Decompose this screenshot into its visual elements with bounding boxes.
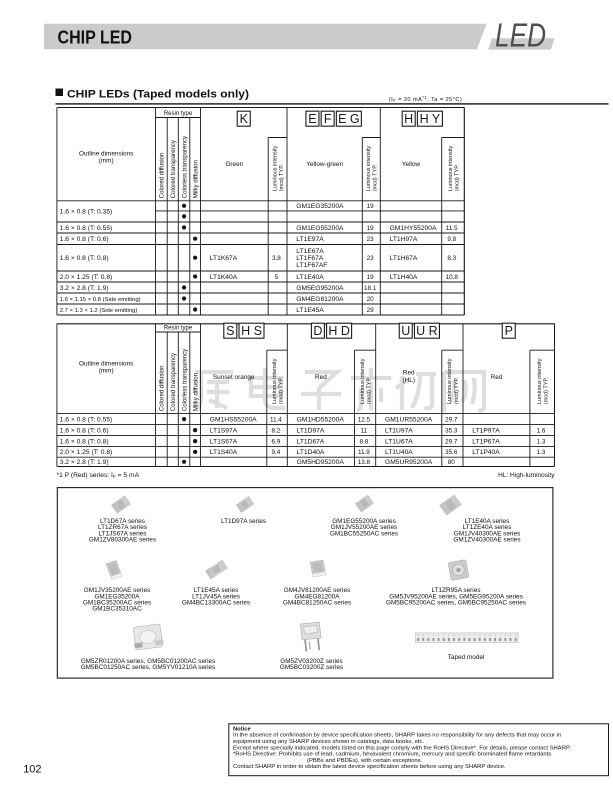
svg-text:23: 23 [367,236,375,243]
svg-text:GM1EG55200A: GM1EG55200A [296,225,344,232]
svg-text:Except where specially indicat: Except where specially indicated, models… [233,745,571,751]
svg-text:11: 11 [361,427,368,434]
svg-text:Luminous intensity: Luminous intensity [537,358,543,404]
svg-text:(mm): (mm) [99,158,114,165]
svg-text:(mcd) TYP.: (mcd) TYP. [278,377,284,404]
svg-text:GM5BC01250AC series, GM5YV0121: GM5BC01250AC series, GM5YV01210A series [81,664,216,671]
svg-text:LT1E97A: LT1E97A [296,236,324,243]
svg-text:HL: High-luminosity: HL: High-luminosity [498,472,555,479]
svg-text:1.6 × 0.8 (T: 0.8): 1.6 × 0.8 (T: 0.8) [60,255,109,262]
svg-text:18.1: 18.1 [364,285,377,292]
svg-text:5: 5 [275,274,279,281]
svg-text:2.0 × 1.25 (T: 0.8): 2.0 × 1.25 (T: 0.8) [60,274,113,281]
svg-text:LT1S40A: LT1S40A [210,449,238,456]
svg-text:Colored diffusion: Colored diffusion [159,153,166,199]
svg-text:GM1HY55200A: GM1HY55200A [390,225,437,232]
svg-text:LT1K67A: LT1K67A [210,255,238,262]
svg-text:LED: LED [495,17,546,54]
svg-text:11.4: 11.4 [270,416,282,423]
svg-text:E G: E G [338,112,360,126]
svg-text:(mm): (mm) [99,368,114,375]
svg-text:13.8: 13.8 [358,459,371,466]
svg-text:3.8: 3.8 [272,255,281,262]
svg-text:29.7: 29.7 [445,438,458,445]
svg-text:1.6 × 0.8 (T: 0.8): 1.6 × 0.8 (T: 0.8) [60,438,109,445]
svg-text:GM5HD95200A: GM5HD95200A [297,459,345,466]
svg-text:GM5UR95200A: GM5UR95200A [385,459,433,466]
svg-text:LT1E40A: LT1E40A [296,274,324,281]
svg-text:23: 23 [367,255,375,262]
svg-text:(mcd) TYP.: (mcd) TYP. [279,164,285,191]
svg-text:LT1P97A: LT1P97A [472,427,500,434]
svg-text:GM5BC03200Z series: GM5BC03200Z series [280,664,343,671]
svg-text:GM1BC55250AC series: GM1BC55250AC series [330,530,398,537]
svg-text:LT1U67A: LT1U67A [385,438,413,445]
svg-text:19: 19 [367,203,375,210]
svg-text:8.2: 8.2 [271,427,280,434]
svg-text:102: 102 [23,763,41,775]
svg-text:CHIP LEDs (Taped models only): CHIP LEDs (Taped models only) [67,89,249,101]
svg-text:35.3: 35.3 [445,427,458,434]
svg-text:1.6 × 0.8 (T: 0.35): 1.6 × 0.8 (T: 0.35) [60,209,113,216]
svg-text:3.2 × 2.8 (T: 1.9): 3.2 × 2.8 (T: 1.9) [60,459,109,466]
svg-text:Colored transparency: Colored transparency [170,352,177,411]
svg-text:Outline dimensions: Outline dimensions [79,151,133,158]
svg-text:In the absence of confirmation: In the absence of confirmation by device… [233,733,561,739]
svg-text:Colorless transparency: Colorless transparency [181,135,188,198]
svg-text:LT1U40A: LT1U40A [385,449,413,456]
svg-text:(mcd) TYP.: (mcd) TYP. [367,377,373,404]
svg-text:GM1BC35310AC: GM1BC35310AC [92,606,142,613]
svg-text:Colored transparency: Colored transparency [170,139,177,198]
svg-text:(mcd) TYP.: (mcd) TYP. [544,377,550,404]
svg-text:10.8: 10.8 [446,274,459,281]
svg-text:Yellow-green: Yellow-green [306,161,343,168]
svg-text:Milky diffusion: Milky diffusion [192,160,199,198]
svg-text:Luminous intensity: Luminous intensity [447,358,453,404]
svg-text:Colored diffusion: Colored diffusion [159,365,166,411]
svg-text:GM4EG81200A: GM4EG81200A [296,296,344,303]
svg-text:LT1D97A series: LT1D97A series [221,518,266,525]
svg-text:1.3: 1.3 [537,438,546,445]
svg-text:Luminous intensity: Luminous intensity [366,145,372,191]
svg-text:LT1U97A: LT1U97A [385,427,413,434]
svg-text:H Y: H Y [420,112,441,126]
svg-text:K: K [240,112,249,126]
svg-text:GM5BC95200AC series, GM5BC9525: GM5BC95200AC series, GM5BC95250AC series [386,600,526,607]
svg-text:LT1F67AF: LT1F67AF [296,262,327,269]
svg-text:Green: Green [225,161,243,168]
svg-text:LT1D97A: LT1D97A [297,427,325,434]
svg-text:LT1E45A: LT1E45A [296,307,324,314]
svg-text:Contact SHARP in order to obta: Contact SHARP in order to obtain the lat… [233,764,506,770]
svg-text:GM1HD55200A: GM1HD55200A [297,416,345,423]
svg-text:Red: Red [315,374,327,381]
svg-text:Yellow: Yellow [402,161,421,168]
svg-text:80: 80 [448,459,456,466]
svg-text:Notice: Notice [233,727,251,733]
svg-text:1.3: 1.3 [537,449,546,456]
svg-text:8.3: 8.3 [447,255,456,262]
svg-text:12.5: 12.5 [358,416,371,423]
svg-text:35.6: 35.6 [445,449,458,456]
svg-text:11.5: 11.5 [446,225,458,232]
svg-text:2.7 × 1.3 × 1.2 (Side emitting: 2.7 × 1.3 × 1.2 (Side emitting) [60,308,138,314]
svg-text:*1 P (Red) series: IF = 5 mA: *1 P (Red) series: IF = 5 mA [57,472,140,480]
svg-text:(mcd) TYP.: (mcd) TYP. [454,377,460,404]
svg-text:9.8: 9.8 [447,236,456,243]
svg-text:GM4BC81250AC series: GM4BC81250AC series [283,600,351,607]
svg-text:H S: H S [241,324,262,338]
svg-text:1.6 × 0.8 (T: 0.6): 1.6 × 0.8 (T: 0.6) [60,427,109,434]
svg-text:8.8: 8.8 [360,438,369,445]
svg-text:LT1S67A: LT1S67A [210,438,238,445]
svg-text:3.2 × 2.8 (T: 1.9): 3.2 × 2.8 (T: 1.9) [60,285,109,292]
svg-text:U: U [401,324,410,338]
svg-text:1.6 × 0.8 (T: 0.55): 1.6 × 0.8 (T: 0.55) [60,416,113,423]
svg-text:Taped model: Taped model [448,654,485,661]
svg-text:LT1D40A: LT1D40A [297,449,325,456]
svg-text:29.7: 29.7 [445,416,458,423]
svg-text:6.9: 6.9 [271,438,280,445]
svg-text:E: E [308,112,316,126]
svg-text:GM1ZV80300AE series: GM1ZV80300AE series [89,537,156,544]
svg-text:LT1H97A: LT1H97A [390,236,418,243]
svg-text:LT1P40A: LT1P40A [472,449,500,456]
svg-text:20: 20 [367,296,375,303]
svg-text:Luminous intensity: Luminous intensity [272,358,278,404]
svg-text:CHIP LED: CHIP LED [58,26,133,47]
svg-text:(mcd) TYP.: (mcd) TYP. [373,164,379,191]
svg-text:Colorless transparency: Colorless transparency [181,348,188,411]
svg-text:1.6 × 0.8 (T: 0.55): 1.6 × 0.8 (T: 0.55) [60,225,113,232]
svg-text:1.6: 1.6 [537,427,546,434]
svg-text:LT1E67A: LT1E67A [296,248,324,255]
svg-text:U R: U R [416,324,438,338]
svg-text:Resin type: Resin type [164,325,193,331]
svg-text:9.4: 9.4 [271,449,280,456]
svg-text:GM5EG95200A: GM5EG95200A [296,285,344,292]
svg-text:H D: H D [328,324,350,338]
svg-text:equipment using any SHARP devi: equipment using any SHARP devices shown … [233,739,424,745]
svg-text:LT1H40A: LT1H40A [390,274,418,281]
svg-text:*RoHS Directive: Prohibits use: *RoHS Directive: Prohibits use of lead, … [233,752,551,758]
svg-text:P: P [505,324,513,338]
svg-text:D: D [313,324,322,338]
svg-text:GM1HS55200A: GM1HS55200A [210,416,257,423]
svg-text:19: 19 [367,225,375,232]
svg-text:Milky diffusion: Milky diffusion [192,373,199,411]
svg-text:GM4BC13300AC series: GM4BC13300AC series [182,600,250,607]
svg-text:Luminous intensity: Luminous intensity [360,358,366,404]
svg-text:GM1ZV40300AE series: GM1ZV40300AE series [453,537,520,544]
svg-text:Resin type: Resin type [164,111,193,117]
svg-text:H: H [404,112,413,126]
svg-text:GM1EG35200A: GM1EG35200A [296,203,344,210]
svg-text:29: 29 [367,307,375,314]
svg-text:S: S [226,324,234,338]
svg-text:Sunset orange: Sunset orange [213,374,255,381]
svg-text:(HL): (HL) [403,377,415,384]
svg-text:LT1P67A: LT1P67A [472,438,500,445]
svg-text:Outline dimensions: Outline dimensions [79,361,133,368]
svg-text:1.6 × 1.15 × 0.8 (Side emittin: 1.6 × 1.15 × 0.8 (Side emitting) [60,297,141,303]
svg-text:Luminous intensity: Luminous intensity [448,145,454,191]
svg-text:19: 19 [367,274,375,281]
svg-text:LT1F67A: LT1F67A [296,255,324,262]
svg-text:1.6 × 0.8 (T: 0.6): 1.6 × 0.8 (T: 0.6) [60,236,109,243]
svg-text:11.9: 11.9 [358,449,370,456]
svg-text:LT1H67A: LT1H67A [390,255,418,262]
svg-text:GM1UR55200A: GM1UR55200A [385,416,433,423]
svg-text:(PBBs and PBDEs), with certain: (PBBs and PBDEs), with certain exception… [307,758,423,764]
svg-text:LT1D67A: LT1D67A [297,438,325,445]
svg-text:(mcd) TYP.: (mcd) TYP. [454,164,460,191]
svg-text:Red: Red [491,374,503,381]
svg-text:(IF = 20 mA*1, Ta = 25°C): (IF = 20 mA*1, Ta = 25°C) [389,95,462,103]
svg-text:F: F [324,112,332,126]
svg-text:LT1S97A: LT1S97A [210,427,238,434]
svg-text:Luminous intensity: Luminous intensity [272,145,278,191]
svg-text:Red: Red [403,370,415,377]
svg-text:2.0 × 1.25 (T: 0.8): 2.0 × 1.25 (T: 0.8) [60,449,113,456]
svg-text:LT1K40A: LT1K40A [210,274,238,281]
